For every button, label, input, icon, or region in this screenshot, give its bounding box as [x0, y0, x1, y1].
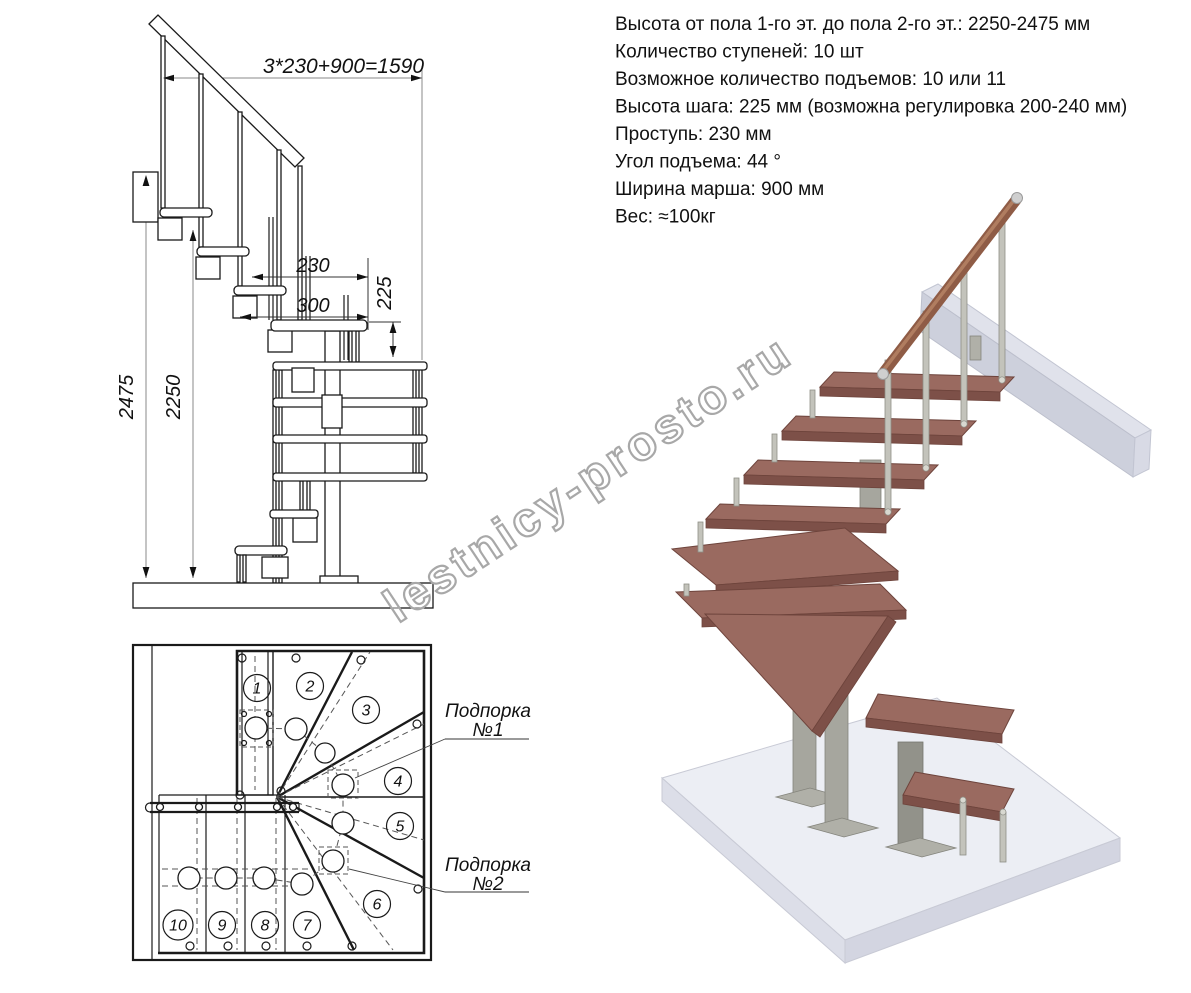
elev-tread: [197, 247, 249, 256]
landing-beam-top: [922, 284, 1151, 438]
elev-baluster: [161, 36, 165, 208]
elev-bar: [273, 473, 427, 481]
elev-landing: [271, 320, 367, 331]
support-1-label-line2: №1: [472, 720, 503, 741]
step-number-4: 4: [394, 774, 403, 791]
spec-line-steps: Количество ступеней: 10 шт: [615, 42, 864, 63]
elev-tread: [234, 286, 286, 295]
spec-line-tread: Проступь: 230 мм: [615, 124, 772, 145]
plan-post: [285, 718, 307, 740]
baluster: [923, 311, 929, 468]
elev-bar: [273, 435, 427, 443]
dim-step-height-label: 225: [374, 275, 396, 310]
step-number-6: 6: [373, 897, 382, 914]
spec-line-weight: Вес: ≈100кг: [615, 207, 716, 228]
spec-line-width: Ширина марша: 900 мм: [615, 179, 824, 200]
step-number-2: 2: [305, 679, 315, 696]
tread-post: [698, 522, 703, 552]
plan-view: 1 2 3 4 5 6 7 8 9 10 Подпорка №1: [133, 645, 531, 960]
plan-post: [215, 867, 237, 889]
post-cap: [1000, 809, 1006, 815]
step-number-5: 5: [396, 819, 405, 836]
step-number-7: 7: [303, 918, 313, 935]
dim-height-min-label: 2250: [163, 375, 185, 421]
elev-handrail: [149, 15, 304, 167]
handrail-end-cap: [1012, 193, 1023, 204]
baluster-base: [999, 377, 1005, 383]
specs-panel: Высота от пола 1-го эт. до пола 2-го эт.…: [615, 14, 1127, 228]
step-number-10: 10: [169, 918, 187, 935]
plan-post: [245, 717, 267, 739]
plan-post: [315, 743, 335, 763]
support-1-callout: Подпорка №1: [355, 701, 531, 778]
post-cap: [960, 797, 966, 803]
step-number-1: 1: [253, 681, 262, 698]
elev-tread: [160, 208, 212, 217]
plan-post: [253, 867, 275, 889]
spec-line-step-height: Высота шага: 225 мм (возможна регулировк…: [615, 97, 1127, 118]
dim-total-width-label: 3*230+900=1590: [263, 55, 424, 78]
step-number-9: 9: [218, 918, 227, 935]
tread-post: [1000, 812, 1006, 862]
support-2-callout: Подпорка №2: [349, 855, 531, 895]
baluster: [961, 262, 967, 424]
baluster-base: [961, 421, 967, 427]
plan-post-support-2: [322, 850, 344, 872]
handrail-end-cap: [878, 369, 889, 380]
tread-post: [734, 478, 739, 506]
floor-slab-top: [662, 698, 1120, 940]
tread-post: [960, 800, 966, 855]
dim-tread-depth-label: 230: [295, 255, 329, 277]
baluster-base: [923, 465, 929, 471]
plan-post-support-1: [332, 774, 354, 796]
diagram-canvas: 3*230+900=1590 230 300 225 2475 2250: [0, 0, 1191, 993]
plan-post: [332, 812, 354, 834]
elev-bar: [273, 398, 427, 407]
step-number-8: 8: [261, 918, 270, 935]
baluster: [999, 213, 1005, 380]
elev-bottom-tread: [235, 546, 287, 555]
tread-post: [810, 390, 815, 418]
support-2-label-line1: Подпорка: [445, 855, 531, 876]
support-2-label-line2: №2: [472, 874, 504, 895]
spec-line-height: Высота от пола 1-го эт. до пола 2-го эт.…: [615, 14, 1090, 35]
render-3d: [662, 193, 1151, 964]
dim-module-depth-label: 300: [296, 295, 329, 317]
elev-baluster: [238, 112, 242, 286]
step-number-3: 3: [362, 703, 371, 720]
tread-post: [772, 434, 777, 462]
baluster-base: [885, 509, 891, 515]
tread-post: [684, 584, 689, 596]
dim-height-max-label: 2475: [116, 374, 138, 420]
elevation-view: 3*230+900=1590 230 300 225 2475 2250: [116, 15, 433, 608]
elev-baluster: [199, 74, 203, 247]
spec-line-rises: Возможное количество подъемов: 10 или 11: [615, 69, 1006, 90]
plan-post: [178, 867, 200, 889]
stair-specification-sheet: 3*230+900=1590 230 300 225 2475 2250: [0, 0, 1191, 993]
baluster: [885, 360, 891, 512]
spec-line-angle: Угол подъема: 44 °: [615, 152, 781, 173]
plan-post: [291, 873, 313, 895]
support-1-label-line1: Подпорка: [445, 701, 531, 722]
beam-bracket-plate: [970, 336, 981, 360]
